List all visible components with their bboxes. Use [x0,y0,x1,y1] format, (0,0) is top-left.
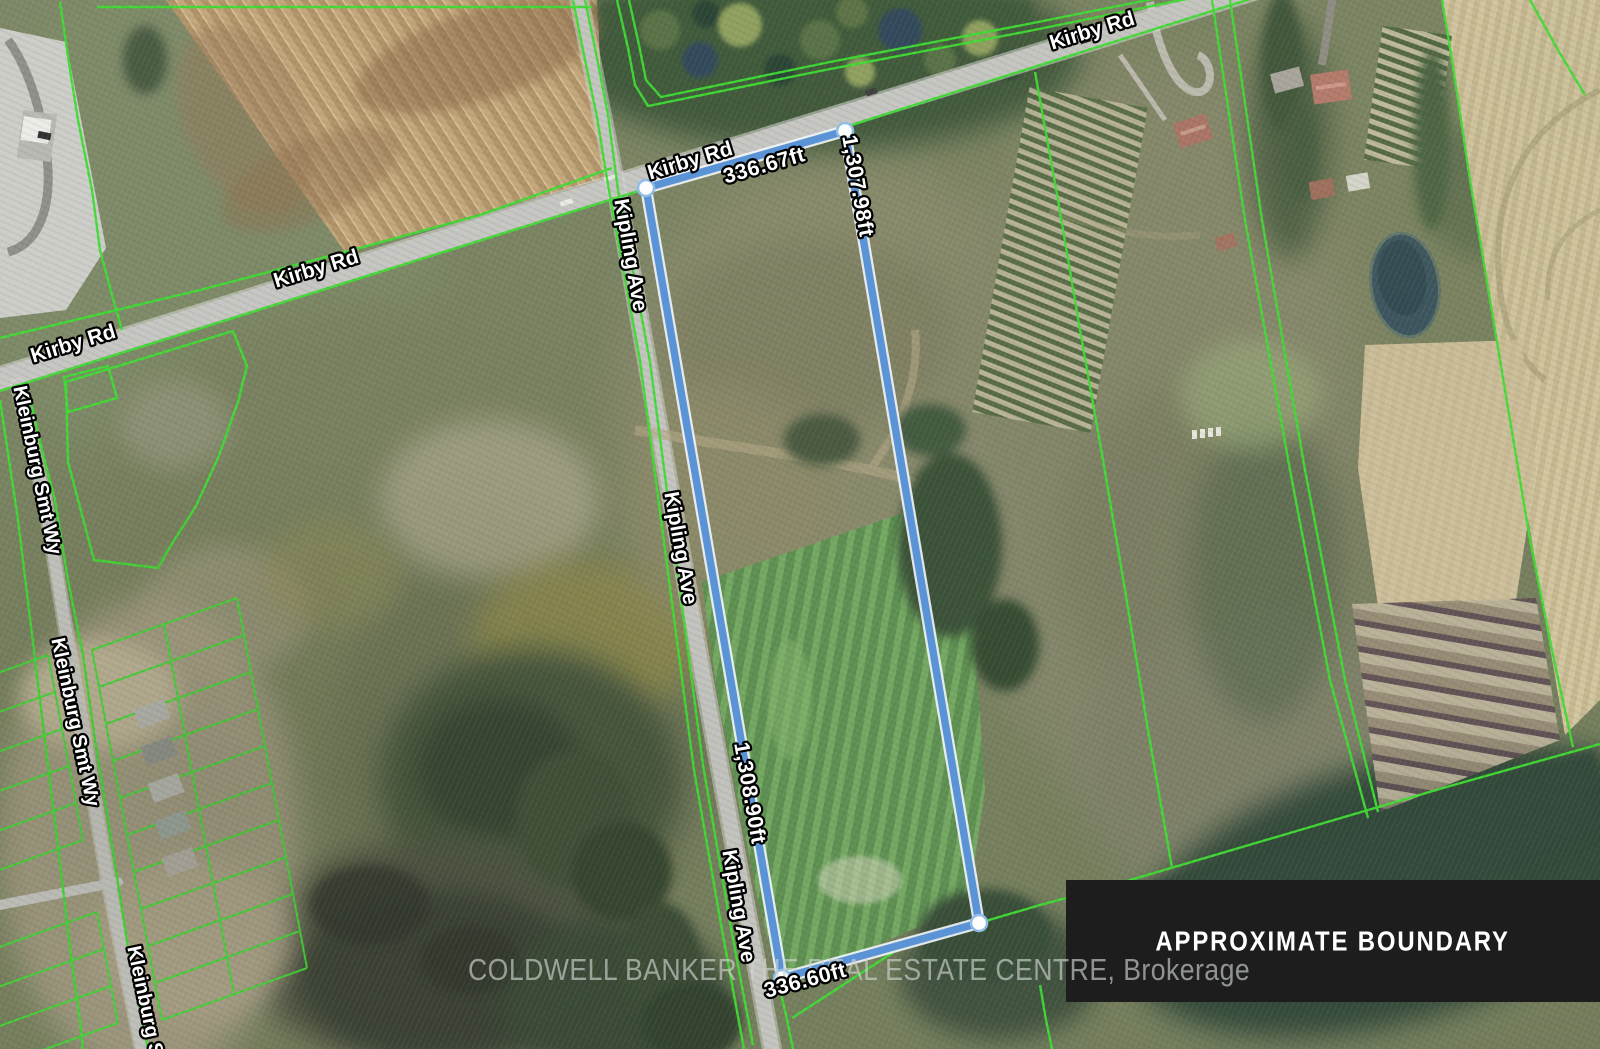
parcel-line [1123,744,1600,882]
parcel-line [779,985,793,1049]
road-label-kleinburg-2: Kleinburg Smt Wy [46,636,103,810]
parcel-line [1442,0,1573,747]
approximate-boundary-outline [638,123,987,986]
approximate-boundary-badge: APPROXIMATE BOUNDARY [1066,880,1600,1002]
green-crop-field [702,505,985,988]
pond [1364,229,1446,341]
house [1310,70,1352,105]
parcel-line [573,0,744,1049]
parcel-line [60,2,122,330]
road-label-kirby-4: Kirby Rd [1047,7,1137,55]
shed [1309,178,1336,200]
satellite-map-image: APPROXIMATE BOUNDARY COLDWELL BANKER THE… [0,0,1600,1049]
car [1079,35,1091,44]
shed [1346,172,1370,192]
parcel-line [1212,0,1368,818]
measurement-label-left: 1,308.90ft [729,740,771,846]
approximate-boundary-label: APPROXIMATE BOUNDARY [1156,924,1510,957]
parcel-line [0,0,1250,391]
forest-top [596,0,1210,108]
road-label-kipling-1: Kipling Ave [609,197,651,313]
parcel-line [0,168,612,338]
garden-plots-top-right [972,26,1452,433]
road-label-kleinburg-1: Kleinburg Smt Wy [8,384,65,558]
road-label-kipling-3: Kipling Ave [717,848,759,964]
beige-field-right-edge [1440,0,1600,735]
subdivision-houses [134,699,199,877]
crop-strips-mid-right [1352,598,1560,812]
building [17,110,57,162]
road-label-kirby-3: Kirby Rd [645,137,735,185]
road-label-kipling-2: Kipling Ave [659,490,701,606]
plowed-field-top-left [150,0,618,255]
parcel-line [792,898,1066,1018]
tan-field-mid-right [1358,340,1536,606]
grain-overlay [0,0,1600,1049]
kirby-road [0,0,1255,385]
boundary-vertex [638,123,987,986]
barn [1270,66,1304,93]
terrain-texture [0,0,1600,1049]
measurement-label-right: 1,307.98ft [837,133,879,239]
road-label-kirby-1: Kirby Rd [28,320,118,368]
car [37,131,51,141]
parcel-line [30,398,148,1049]
car [865,87,877,96]
parcel-line [1040,985,1052,1049]
parcel-lines [0,0,1600,1049]
parcel-line [629,0,1248,97]
parcel-line [1230,0,1378,812]
road-label-kleinburg-3: Kleinburg Smt Wy [122,944,179,1049]
kleinburg-road [18,386,142,1049]
farm-buildings [1120,0,1370,439]
house [1173,113,1213,148]
parcel-line [0,400,83,1049]
parcel-line [617,0,1246,106]
side-street [0,882,118,905]
measurement-label-top: 336.67ft [720,142,807,188]
small-parcel [64,366,117,412]
measurement-label-bottom: 336.60ft [761,958,848,1003]
kipling-road [578,0,772,1049]
map-marks [1192,427,1221,439]
parcel-line [1035,72,1172,868]
road-label-kirby-2: Kirby Rd [271,245,361,293]
trails [635,210,1200,540]
roads [0,0,1255,1049]
parcel-line [585,0,753,1045]
trees [123,0,1600,1049]
subdivision-lots [0,598,307,1049]
large-parcel [66,331,247,568]
parcel-line [1530,0,1585,95]
parking-lot [0,28,106,318]
shed [1214,232,1237,251]
brokerage-watermark: COLDWELL BANKER THE REAL ESTATE CENTRE, … [468,952,1250,988]
